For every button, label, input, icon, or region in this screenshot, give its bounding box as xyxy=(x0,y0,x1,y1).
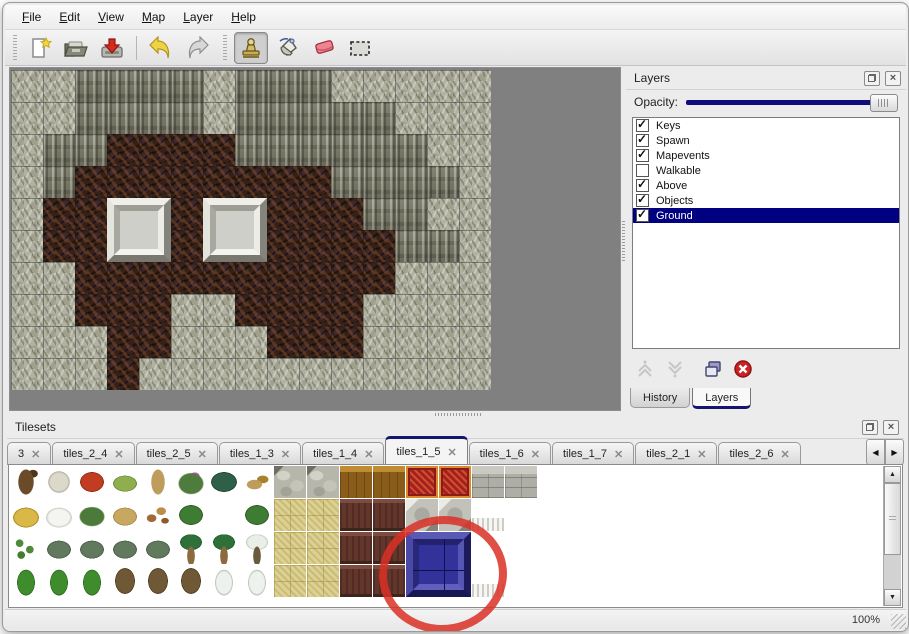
tileset-tab-label: tiles_2_6 xyxy=(729,448,773,460)
tab-close-icon[interactable] xyxy=(114,448,123,461)
map-tile-rock xyxy=(331,358,363,390)
tileset-tile-bush[interactable] xyxy=(43,532,75,564)
layer-name: Spawn xyxy=(656,135,690,147)
layer-row-walkable[interactable]: Walkable xyxy=(633,163,899,178)
tileset-tile-conifer[interactable] xyxy=(76,565,108,597)
tileset-tile-palm[interactable] xyxy=(175,532,207,564)
resize-grip[interactable] xyxy=(891,614,906,629)
map-tile-cliff-wall xyxy=(363,134,395,166)
map-tile-dirt-floor xyxy=(267,198,299,230)
map-tile-rock xyxy=(203,358,235,390)
map-tile-rock xyxy=(235,358,267,390)
select-button[interactable] xyxy=(344,33,376,63)
layer-row-objects[interactable]: Objects xyxy=(633,193,899,208)
map-tile-dirt-floor xyxy=(75,262,107,294)
map-tile-dirt-floor xyxy=(267,262,299,294)
float-panel-icon[interactable] xyxy=(862,420,878,435)
tilesets-dock: Tilesets 3tiles_2_4tiles_2_5tiles_1_3til… xyxy=(7,416,904,612)
tilesets-dock-title: Tilesets xyxy=(7,420,862,434)
map-tile-dirt-floor xyxy=(171,198,203,230)
layer-name: Mapevents xyxy=(656,150,710,162)
map-pedestal-tile xyxy=(107,198,171,262)
map-tile-rock xyxy=(427,326,459,358)
tileset-tile-dead-tree[interactable] xyxy=(142,565,174,597)
menu-item-view[interactable]: View xyxy=(89,7,133,27)
tileset-tile-lilypad[interactable] xyxy=(175,499,207,531)
layer-visibility-checkbox[interactable] xyxy=(636,119,649,132)
close-panel-icon[interactable] xyxy=(885,71,901,86)
tileset-tab-tiles_2_4[interactable]: tiles_2_4 xyxy=(52,442,134,465)
menu-item-file[interactable]: File xyxy=(13,7,50,27)
tab-close-icon[interactable] xyxy=(31,448,40,461)
map-tile-dirt-floor xyxy=(75,294,107,326)
map-tile-dirt-floor xyxy=(299,198,331,230)
tileset-tile-blank[interactable] xyxy=(505,532,537,564)
map-tile-cliff-wall xyxy=(171,70,203,102)
map-tile-rock xyxy=(427,102,459,134)
map-tile-rock xyxy=(139,358,171,390)
zoom-level: 100% xyxy=(852,614,880,626)
map-tile-dirt-floor xyxy=(299,166,331,198)
map-tile-dirt-floor xyxy=(171,230,203,262)
tileset-tile-carpet[interactable] xyxy=(406,466,438,498)
map-tile-cliff-wall xyxy=(395,230,427,262)
fill-button[interactable] xyxy=(272,33,304,63)
map-canvas[interactable] xyxy=(9,67,621,411)
map-tile-cliff-wall xyxy=(75,134,107,166)
undo-icon xyxy=(148,36,174,60)
map-tile-rock xyxy=(459,198,491,230)
tileset-tile-flower-purple[interactable] xyxy=(175,466,207,498)
scroll-down-arrow-icon[interactable] xyxy=(884,589,901,606)
map-tile-cliff-wall xyxy=(139,70,171,102)
tileset-tab-tiles_2_1[interactable]: tiles_2_1 xyxy=(635,442,717,465)
map-tile-dirt-floor xyxy=(267,294,299,326)
opacity-slider[interactable] xyxy=(686,94,898,110)
save-button[interactable] xyxy=(96,33,128,63)
map-tile-dirt-floor xyxy=(107,262,139,294)
map-tile-rock xyxy=(43,294,75,326)
map-tile-dirt-floor xyxy=(139,326,171,358)
tileset-tile-cobble[interactable] xyxy=(274,466,306,498)
map-tile-dirt-floor xyxy=(235,294,267,326)
tileset-tab-label: tiles_1_4 xyxy=(313,448,357,460)
tileset-content[interactable] xyxy=(8,464,903,608)
map-tile-rock xyxy=(459,262,491,294)
tab-close-icon[interactable] xyxy=(281,448,290,461)
map-tile-rock xyxy=(43,102,75,134)
map-tile-cliff-wall xyxy=(427,166,459,198)
tileset-tile-conifer[interactable] xyxy=(10,565,42,597)
dock-tab-history[interactable]: History xyxy=(630,388,690,408)
map-tile-rock xyxy=(11,262,43,294)
tileset-tile-branch[interactable] xyxy=(43,466,75,498)
map-tile-rock xyxy=(203,326,235,358)
map-tile-cliff-wall xyxy=(331,102,363,134)
map-tile-cliff-wall xyxy=(331,166,363,198)
map-tile-rock xyxy=(459,166,491,198)
map-pedestal-tile xyxy=(203,198,267,262)
opacity-label: Opacity: xyxy=(634,95,678,109)
map-tile-rock xyxy=(43,358,75,390)
map-tile-dirt-floor xyxy=(43,198,75,230)
map-tile-dirt-floor xyxy=(139,166,171,198)
layer-name: Objects xyxy=(656,195,693,207)
map-tile-cliff-wall xyxy=(75,102,107,134)
map-tile-dirt-floor xyxy=(171,166,203,198)
tileset-scrollbar[interactable] xyxy=(883,466,901,606)
map-tile-dirt-floor xyxy=(139,134,171,166)
tab-scroll-left-icon[interactable] xyxy=(866,439,885,465)
new-button[interactable] xyxy=(24,33,56,63)
tileset-tab-label: tiles_1_7 xyxy=(563,448,607,460)
tileset-tab-tiles_1_7[interactable]: tiles_1_7 xyxy=(552,442,634,465)
tab-scroll-right-icon[interactable] xyxy=(885,439,904,465)
tileset-tile-stone[interactable] xyxy=(472,466,504,498)
map-tile-rock xyxy=(11,358,43,390)
layer-row-spawn[interactable]: Spawn xyxy=(633,133,899,148)
tab-close-icon[interactable] xyxy=(447,446,456,459)
chevron-down-icon xyxy=(665,359,685,379)
layer-visibility-checkbox[interactable] xyxy=(636,209,649,222)
map-tile-rock xyxy=(427,70,459,102)
map-tile-rock xyxy=(11,326,43,358)
map-tile-dirt-floor xyxy=(363,262,395,294)
map-tile-dirt-floor xyxy=(363,230,395,262)
tileset-tile-flower-pink[interactable] xyxy=(208,499,240,531)
menu-item-edit[interactable]: Edit xyxy=(50,7,89,27)
map-tile-rock xyxy=(203,102,235,134)
map-tile-cliff-wall xyxy=(299,70,331,102)
tileset-tile-tan[interactable] xyxy=(274,532,306,564)
map-tile-rock xyxy=(363,326,395,358)
map-tile-dirt-floor xyxy=(299,262,331,294)
tileset-tab-tiles_1_3[interactable]: tiles_1_3 xyxy=(219,442,301,465)
toolbar-separator xyxy=(136,36,137,60)
tileset-tile-stump[interactable] xyxy=(109,466,141,498)
duplicate-layer-button[interactable] xyxy=(700,356,726,382)
redo-icon xyxy=(184,36,210,60)
tileset-tile-grass[interactable] xyxy=(109,499,141,531)
map-tile-dirt-floor xyxy=(331,262,363,294)
tab-close-icon[interactable] xyxy=(364,448,373,461)
toolbar-drag-handle[interactable] xyxy=(221,35,228,61)
tileset-tile-tan[interactable] xyxy=(274,499,306,531)
new-file-icon xyxy=(28,36,52,60)
tileset-tile-carpet[interactable] xyxy=(439,466,471,498)
map-tile-rock xyxy=(11,134,43,166)
map-tile-rock xyxy=(235,326,267,358)
map-tile-dirt-floor xyxy=(75,166,107,198)
tileset-tile-tan[interactable] xyxy=(307,565,339,597)
map-tile-rock xyxy=(427,134,459,166)
stamp-tool-icon xyxy=(239,36,263,60)
tileset-tile-twig[interactable] xyxy=(241,466,273,498)
map-tile-cliff-wall xyxy=(395,166,427,198)
map-tile-rock xyxy=(395,358,427,390)
layer-visibility-checkbox[interactable] xyxy=(636,164,649,177)
tileset-tile-brown[interactable] xyxy=(340,532,372,564)
map-tile-rock xyxy=(427,262,459,294)
map-tile-rock xyxy=(459,70,491,102)
tileset-tab-tiles_1_6[interactable]: tiles_1_6 xyxy=(469,442,551,465)
tileset-tile-dead-tree[interactable] xyxy=(175,565,207,597)
map-tile-rock xyxy=(459,230,491,262)
map-tile-rock xyxy=(427,358,459,390)
tileset-tile-fern[interactable] xyxy=(208,466,240,498)
toolbar-drag-handle[interactable] xyxy=(11,35,18,61)
map-tile-dirt-floor xyxy=(107,294,139,326)
scrollbar-thumb[interactable] xyxy=(884,483,901,555)
tileset-tile-pillar[interactable] xyxy=(406,499,438,531)
tileset-tile-flower-red[interactable] xyxy=(76,466,108,498)
map-tile-rock xyxy=(43,262,75,294)
map-tile-dirt-floor xyxy=(267,230,299,262)
map-tile-rock xyxy=(299,358,331,390)
tileset-tile-ruffle[interactable] xyxy=(472,499,504,531)
menu-item-layer[interactable]: Layer xyxy=(174,7,222,27)
tileset-tile-palm[interactable] xyxy=(208,532,240,564)
map-tile-cliff-wall xyxy=(235,134,267,166)
tileset-tile-brown[interactable] xyxy=(340,499,372,531)
layer-name: Ground xyxy=(656,210,693,222)
map-tile-dirt-floor xyxy=(331,198,363,230)
tileset-tile-ruffle[interactable] xyxy=(472,565,504,597)
map-tile-cliff-wall xyxy=(363,102,395,134)
layer-row-mapevents[interactable]: Mapevents xyxy=(633,148,899,163)
tileset-tile-brown[interactable] xyxy=(373,499,405,531)
delete-layer-icon xyxy=(733,359,753,379)
move-layer-down-button[interactable] xyxy=(662,356,688,382)
map-tile-rock xyxy=(43,326,75,358)
map-tile-rock xyxy=(395,70,427,102)
layer-row-ground[interactable]: Ground xyxy=(633,208,899,223)
tileset-tile-cobble[interactable] xyxy=(307,466,339,498)
tileset-tile-snow-conifer[interactable] xyxy=(208,565,240,597)
tab-close-icon[interactable] xyxy=(781,448,790,461)
map-tile-rock xyxy=(75,358,107,390)
dock-tab-bar: HistoryLayers xyxy=(630,388,753,412)
map-tile-dirt-floor xyxy=(75,198,107,230)
map-tile-rock xyxy=(363,70,395,102)
tileset-tab-label: tiles_2_4 xyxy=(63,448,107,460)
map-tile-dirt-floor xyxy=(107,134,139,166)
save-icon xyxy=(99,36,125,60)
tileset-tile-pillar[interactable] xyxy=(439,499,471,531)
tileset-tab-label: tiles_1_3 xyxy=(230,448,274,460)
open-folder-icon xyxy=(63,36,89,60)
tab-close-icon[interactable] xyxy=(697,448,706,461)
tileset-tab-label: tiles_1_6 xyxy=(480,448,524,460)
map-tile-rock xyxy=(459,326,491,358)
map-tile-dirt-floor xyxy=(139,294,171,326)
tileset-tile-tan[interactable] xyxy=(307,499,339,531)
selected-tile-highlight[interactable] xyxy=(406,532,471,597)
layer-name: Above xyxy=(656,180,687,192)
map-tile-cliff-wall xyxy=(139,102,171,134)
map-tile-rock xyxy=(363,358,395,390)
map-tile-dirt-floor xyxy=(171,262,203,294)
tileset-tab-tiles_2_6[interactable]: tiles_2_6 xyxy=(718,442,800,465)
status-bar: 100% xyxy=(5,609,906,629)
map-tile-dirt-floor xyxy=(267,326,299,358)
tileset-tile-hay[interactable] xyxy=(10,499,42,531)
tab-close-icon[interactable] xyxy=(531,448,540,461)
map-tile-dirt-floor xyxy=(139,262,171,294)
tileset-tile-stone[interactable] xyxy=(505,466,537,498)
opacity-slider-handle[interactable] xyxy=(870,94,898,112)
tileset-tile-sprouts[interactable] xyxy=(10,532,42,564)
tileset-tile-snow-mound[interactable] xyxy=(43,499,75,531)
map-tile-rock xyxy=(171,294,203,326)
map-tile-rock xyxy=(459,134,491,166)
map-tile-cliff-wall xyxy=(331,134,363,166)
tileset-tile-brown[interactable] xyxy=(340,565,372,597)
float-panel-icon[interactable] xyxy=(864,71,880,86)
scroll-up-arrow-icon[interactable] xyxy=(884,466,901,483)
map-tile-dirt-floor xyxy=(299,294,331,326)
menu-item-help[interactable]: Help xyxy=(222,7,265,27)
map-tile-cliff-wall xyxy=(43,166,75,198)
tileset-tab-tiles_1_4[interactable]: tiles_1_4 xyxy=(302,442,384,465)
map-tile-rock xyxy=(427,294,459,326)
layer-visibility-checkbox[interactable] xyxy=(636,179,649,192)
open-button[interactable] xyxy=(60,33,92,63)
tileset-tile-bush[interactable] xyxy=(76,532,108,564)
map-tile-cliff-wall xyxy=(235,102,267,134)
undo-button[interactable] xyxy=(145,33,177,63)
map-tile-rock xyxy=(459,294,491,326)
map-tile-dirt-floor xyxy=(299,230,331,262)
map-tile-rock xyxy=(11,198,43,230)
map-tile-rock xyxy=(75,326,107,358)
map-tile-dirt-floor xyxy=(43,230,75,262)
tileset-tile-lilypad[interactable] xyxy=(241,499,273,531)
map-tile-rock xyxy=(459,102,491,134)
duplicate-layer-icon xyxy=(703,359,723,379)
layer-actions xyxy=(632,353,900,385)
move-layer-up-button[interactable] xyxy=(632,356,658,382)
stamp-button[interactable] xyxy=(234,32,268,64)
map-tile-dirt-floor xyxy=(75,230,107,262)
map-tile-cliff-wall xyxy=(395,134,427,166)
tileset-tile-wood[interactable] xyxy=(340,466,372,498)
map-tile-dirt-floor xyxy=(171,134,203,166)
tab-close-icon[interactable] xyxy=(614,448,623,461)
layer-row-above[interactable]: Above xyxy=(633,178,899,193)
tileset-tile-tan[interactable] xyxy=(307,532,339,564)
close-panel-icon[interactable] xyxy=(883,420,899,435)
layer-name: Keys xyxy=(656,120,680,132)
tileset-tile-bush[interactable] xyxy=(142,532,174,564)
map-tile-dirt-floor xyxy=(235,262,267,294)
tab-close-icon[interactable] xyxy=(198,448,207,461)
map-tile-cliff-wall xyxy=(267,134,299,166)
tileset-tile-trunk-tan[interactable] xyxy=(142,466,174,498)
layer-visibility-checkbox[interactable] xyxy=(636,134,649,147)
layer-name: Walkable xyxy=(656,165,701,177)
map-tile-dirt-floor xyxy=(203,166,235,198)
tileset-tile-snow-palm[interactable] xyxy=(241,532,273,564)
tileset-tile-dead-tree[interactable] xyxy=(109,565,141,597)
tileset-tab-3[interactable]: 3 xyxy=(7,442,51,465)
tileset-tile-bush[interactable] xyxy=(109,532,141,564)
map-tile-dirt-floor xyxy=(235,166,267,198)
map-tile-dirt-floor xyxy=(107,166,139,198)
map-tile-cliff-wall xyxy=(363,166,395,198)
tileset-tile-leaves[interactable] xyxy=(142,499,174,531)
tileset-tile-conifer[interactable] xyxy=(43,565,75,597)
tileset-tile-wood[interactable] xyxy=(373,466,405,498)
map-tile-rock xyxy=(11,294,43,326)
map-tile-rock xyxy=(203,70,235,102)
layers-dock-titlebar: Layers xyxy=(626,67,906,90)
map-tile-dirt-floor xyxy=(203,134,235,166)
map-tile-rock xyxy=(171,326,203,358)
map-tile-cliff-wall xyxy=(299,134,331,166)
map-tile-rock xyxy=(267,358,299,390)
dock-tab-layers[interactable]: Layers xyxy=(692,388,751,409)
menu-bar: FileEditViewMapLayerHelp xyxy=(5,5,906,30)
chevron-up-icon xyxy=(635,359,655,379)
map-tile-dirt-floor xyxy=(107,358,139,390)
tileset-tile-blank[interactable] xyxy=(505,565,537,597)
app-window: FileEditViewMapLayerHelp Layers Opacity:… xyxy=(2,2,909,632)
eraser-tool-icon xyxy=(311,36,337,60)
eraser-button[interactable] xyxy=(308,33,340,63)
tileset-tile-trunk[interactable] xyxy=(10,466,42,498)
map-tile-rock xyxy=(11,166,43,198)
tileset-tile-snow-conifer[interactable] xyxy=(241,565,273,597)
map-tile-rock xyxy=(11,230,43,262)
map-tile-cliff-wall xyxy=(267,70,299,102)
tileset-tab-tiles_1_5[interactable]: tiles_1_5 xyxy=(385,436,467,465)
layer-row-keys[interactable]: Keys xyxy=(633,118,899,133)
tileset-tile-brown[interactable] xyxy=(373,532,405,564)
layers-dock-title: Layers xyxy=(626,71,864,85)
tileset-tile-flower-orange[interactable] xyxy=(76,499,108,531)
layer-visibility-checkbox[interactable] xyxy=(636,194,649,207)
menu-item-map[interactable]: Map xyxy=(133,7,174,27)
map-tile-rock xyxy=(459,358,491,390)
layers-dock: Layers Opacity: KeysSpawnMapeventsWalkab… xyxy=(626,67,906,412)
map-tile-cliff-wall xyxy=(107,70,139,102)
tileset-tab-label: 3 xyxy=(18,448,24,460)
redo-button[interactable] xyxy=(181,33,213,63)
map-tile-cliff-wall xyxy=(171,102,203,134)
tileset-tab-tiles_2_5[interactable]: tiles_2_5 xyxy=(136,442,218,465)
map-tile-cliff-wall xyxy=(395,198,427,230)
map-tile-cliff-wall xyxy=(75,70,107,102)
map-tile-dirt-floor xyxy=(203,262,235,294)
map-tile-rock xyxy=(395,294,427,326)
map-tile-cliff-wall xyxy=(299,102,331,134)
tileset-tile-brown[interactable] xyxy=(373,565,405,597)
map-tile-rock xyxy=(43,70,75,102)
map-tile-rock xyxy=(203,294,235,326)
map-tile-dirt-floor xyxy=(331,230,363,262)
tileset-tile-blank[interactable] xyxy=(472,532,504,564)
layer-visibility-checkbox[interactable] xyxy=(636,149,649,162)
delete-layer-button[interactable] xyxy=(730,356,756,382)
map-tile-rock xyxy=(427,198,459,230)
map-tile-rock xyxy=(363,294,395,326)
tileset-tile-blank[interactable] xyxy=(505,499,537,531)
tileset-tab-bar: 3tiles_2_4tiles_2_5tiles_1_3tiles_1_4til… xyxy=(7,438,904,465)
map-tile-dirt-floor xyxy=(331,294,363,326)
tileset-tile-tan[interactable] xyxy=(274,565,306,597)
select-tool-icon xyxy=(347,36,373,60)
